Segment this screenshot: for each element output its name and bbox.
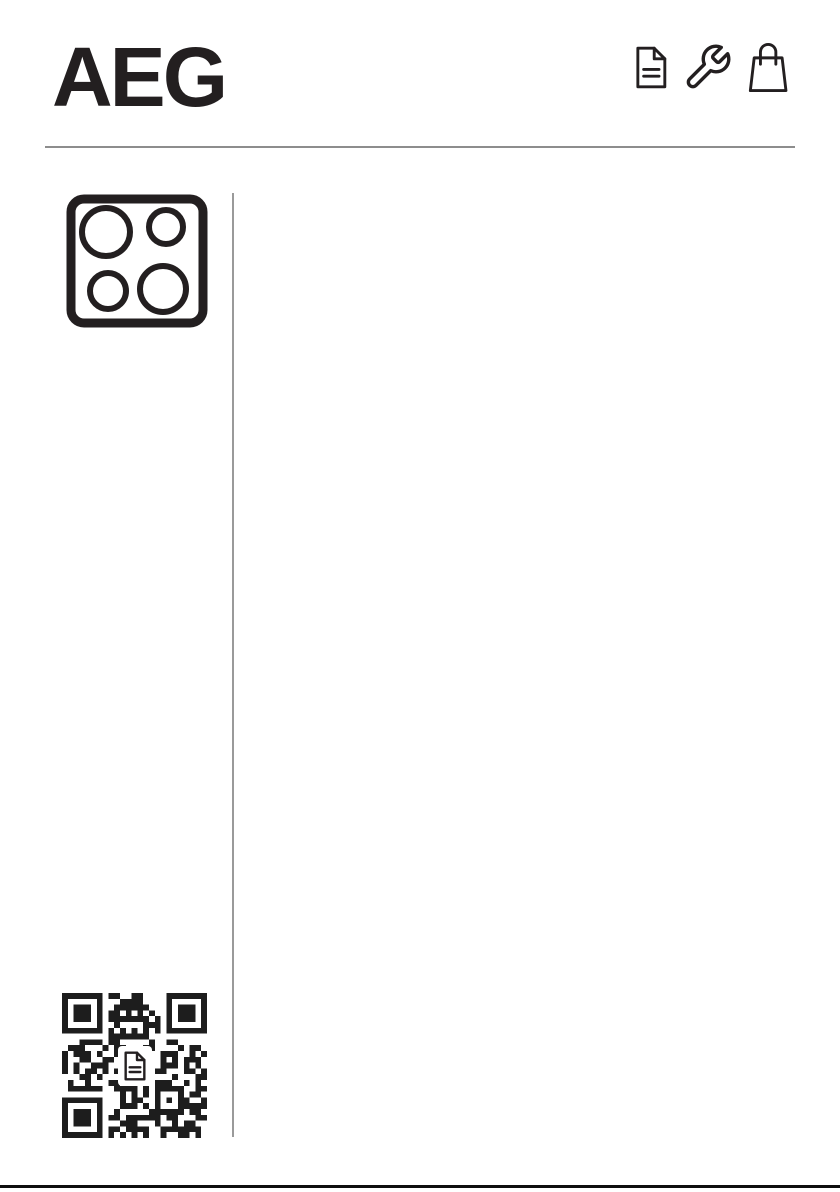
shopping-bag-icon [746, 39, 790, 96]
qr-center-badge [118, 1046, 152, 1086]
document-icon [123, 1051, 147, 1081]
qr-code [62, 993, 207, 1138]
brand-logo: AEG [50, 42, 260, 116]
column-divider [232, 193, 234, 1137]
cooktop-zone-top-left [82, 208, 130, 256]
wrench-icon [682, 41, 733, 94]
document-icon [634, 45, 669, 90]
cooktop-zone-bottom-left [90, 273, 126, 309]
cooktop-zone-top-right [149, 210, 183, 244]
cooktop-icon [66, 194, 208, 328]
header-divider-rule [45, 146, 795, 148]
cooktop-zone-bottom-right [140, 266, 186, 312]
brand-logo-text: AEG [52, 42, 225, 116]
page-edge-bar [0, 1185, 840, 1188]
header-icon-row [634, 34, 790, 100]
